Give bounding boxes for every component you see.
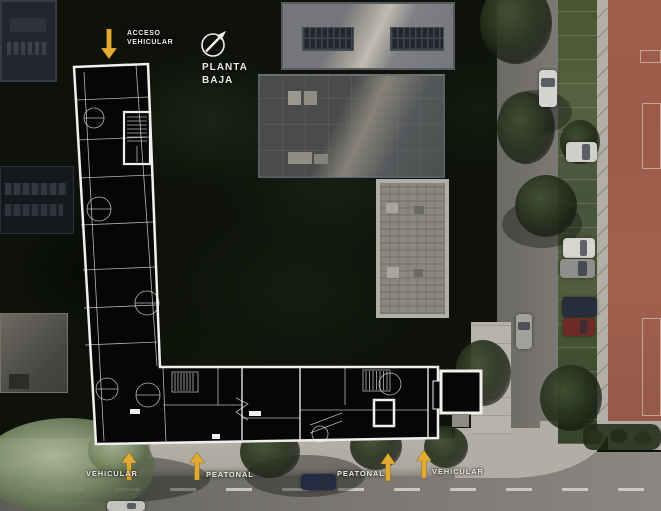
rooftop-detail xyxy=(314,154,328,164)
footprint-end-block xyxy=(441,371,481,413)
acceso-line-1: ACCESO xyxy=(127,30,173,39)
plan-title-line-2: BAJA xyxy=(202,75,248,88)
arrow-up-icon xyxy=(190,452,205,480)
roof-vent xyxy=(387,267,399,278)
roof-vent xyxy=(386,203,398,213)
roof-vent xyxy=(414,206,424,214)
plan-title: PLANTA BAJA xyxy=(202,62,248,87)
service-pad xyxy=(452,415,469,427)
bottom-label-vehicular-left: VEHICULAR xyxy=(86,469,138,478)
site-plan-canvas: ACCESO VEHICULAR PLANTA BAJA VEHICULAR P… xyxy=(0,0,661,511)
arrow-down-icon xyxy=(101,29,117,59)
north-arrow-icon xyxy=(202,31,226,56)
arrow-up-icon xyxy=(417,450,432,478)
rooftop-detail xyxy=(304,91,317,105)
floor-plan-overlay xyxy=(0,0,661,511)
acceso-line-2: VEHICULAR xyxy=(127,39,173,48)
bottom-label-peatonal-left: PEATONAL xyxy=(206,470,254,479)
roof-vent xyxy=(414,269,423,277)
bottom-label-peatonal-right: PEATONAL xyxy=(337,469,385,478)
plan-title-line-1: PLANTA xyxy=(202,62,248,75)
acceso-vehicular-label: ACCESO VEHICULAR xyxy=(127,30,173,47)
rooftop-detail xyxy=(288,91,301,105)
bottom-label-vehicular-right: VEHICULAR xyxy=(432,467,484,476)
rooftop-detail xyxy=(288,152,312,164)
